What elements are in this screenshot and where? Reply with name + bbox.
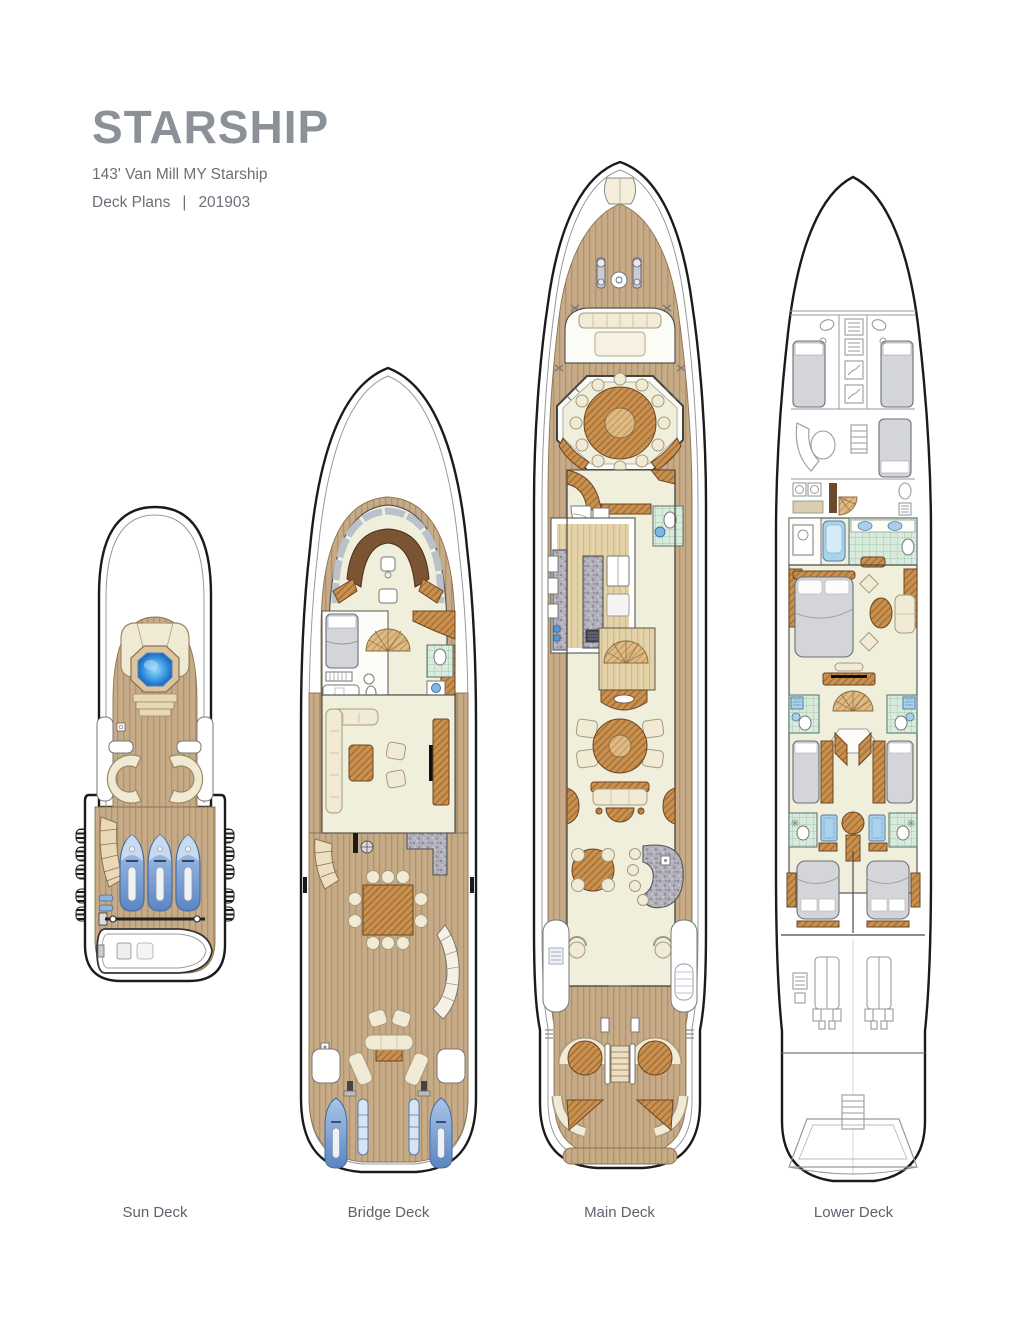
sink [364,674,374,684]
sink [655,527,665,537]
subtitle-model: 143' Van Mill MY Starship [92,164,329,186]
toilet [895,716,907,730]
dining-table [363,885,413,935]
main-deck-label: Main Deck [523,1204,716,1221]
helm-chair [381,557,395,571]
armchair [386,770,407,789]
walkway-port [309,693,321,835]
laundry-counter [793,501,823,513]
walkway-starboard [456,693,468,835]
tv-cabinet [433,719,449,805]
bridge-deck-label: Bridge Deck [295,1204,482,1221]
bridge-deck-figure [295,363,482,1183]
tv [429,745,433,781]
crew-mess-table [811,431,835,459]
page-title: STARSHIP [92,100,329,154]
stern-pod-port [312,1049,340,1083]
toilet [897,826,909,840]
revision-number: 201903 [198,194,250,211]
deck-plans-page: STARSHIP 143' Van Mill MY Starship Deck … [0,0,1024,1325]
grill-rod [353,833,358,853]
day-head [653,506,683,546]
side-gate-port [303,877,307,893]
oval-table [870,598,892,628]
bench [835,663,863,671]
wardrobe [873,741,885,803]
sink [888,522,902,531]
toilet [902,539,914,555]
dresser [869,843,887,851]
deck-chair [655,942,671,958]
swim-platform [563,1148,677,1164]
separator: | [182,194,186,211]
jet-skis [120,835,200,911]
ac-vent [907,819,915,827]
guest-cabins-aft [787,851,920,933]
lower-deck-label: Lower Deck [765,1204,942,1221]
master-bathroom [789,518,917,567]
title-block: STARSHIP 143' Van Mill MY Starship Deck … [92,100,329,215]
toilet [664,512,676,528]
toilet [797,826,809,840]
sink [858,522,872,531]
salon-sofa [593,789,647,805]
side-locker-port [543,920,569,1012]
plans-label: Deck Plans [92,194,170,211]
wardrobe [821,741,833,803]
sink [432,684,441,693]
side-gate-starboard [470,877,474,893]
octagonal-dining-room [557,373,683,473]
toilet [799,716,811,730]
stair-wall [829,483,837,513]
sun-deck-figure [75,495,235,985]
deck-chair [569,942,585,958]
main-deck-figure [523,158,716,1188]
aft-table [638,1041,672,1075]
deck-hatch [117,723,125,731]
captain-cabin [322,611,388,703]
stair-lobby [599,628,655,710]
dresser [819,843,837,851]
stern-pod-starboard [437,1049,465,1083]
aft-sofa [365,1035,413,1050]
lower-deck-figure [765,173,942,1188]
capstan [611,272,627,288]
tv-console [823,673,875,685]
bow-seating [565,308,675,363]
tv [831,675,867,678]
toilet [899,483,911,499]
cooktop [554,626,560,632]
aft-table [568,1041,602,1075]
shower [821,815,837,841]
skylounge [322,695,455,833]
ac-vent [791,819,799,827]
shower [869,815,885,841]
cooktop [554,635,560,641]
tender-boat [97,929,212,973]
subtitle-plans: Deck Plans|201903 [92,192,329,214]
nightstand [911,873,920,907]
coffee-table [349,745,373,781]
sun-deck-label: Sun Deck [75,1204,235,1221]
kayak [358,1099,368,1155]
nightstand [787,873,796,907]
lazarette-stairs [842,1095,864,1129]
toilet [434,649,446,665]
kayak [409,1099,419,1155]
armchair [386,742,407,761]
